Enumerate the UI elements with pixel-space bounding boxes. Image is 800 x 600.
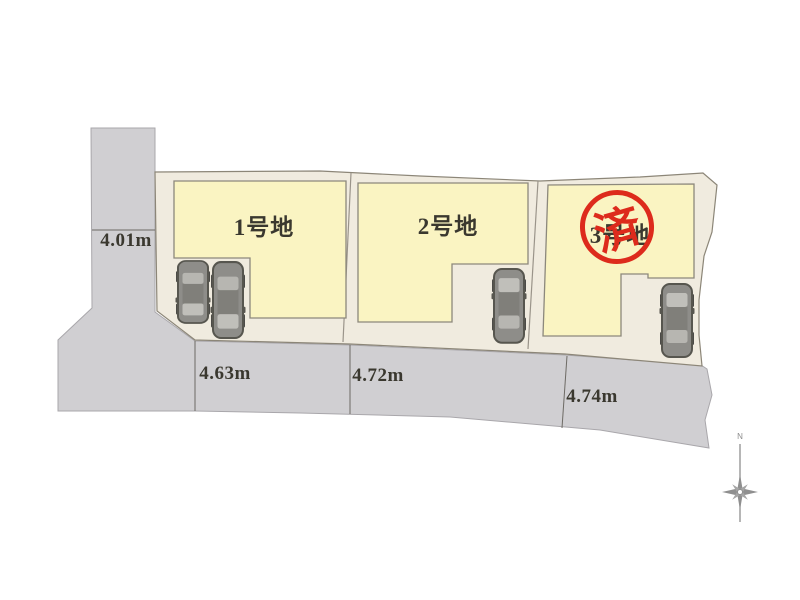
compass-rose-icon: [722, 444, 758, 522]
site-plan: 1号地 2号地 3号地 4.01m 4.63m 4.72m 4.74m 済 N: [0, 0, 800, 600]
car-icon: [492, 269, 527, 343]
north-label: N: [737, 432, 743, 441]
car-icon: [176, 261, 211, 323]
lot2-label: 2号地: [418, 215, 479, 238]
south-frontage-dimension-label-2: 4.72m: [352, 366, 404, 385]
car-icon: [211, 262, 246, 338]
site-plan-drawing: [0, 0, 800, 600]
car-icon: [660, 284, 695, 357]
lot1-label: 1号地: [234, 216, 295, 239]
south-frontage-dimension-label-1: 4.63m: [199, 364, 251, 383]
sold-stamp-character: 済: [586, 189, 648, 265]
west-road-dimension-label: 4.01m: [100, 231, 152, 250]
south-frontage-dimension-label-3: 4.74m: [566, 387, 618, 406]
